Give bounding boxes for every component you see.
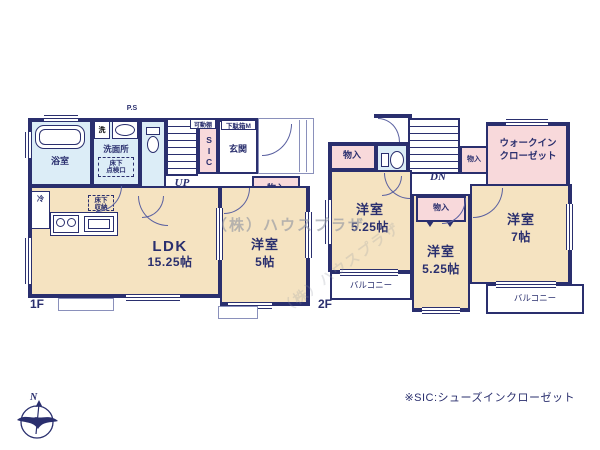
ldk-size-label: 15.25帖 bbox=[120, 255, 220, 271]
movable-shelf-label: 可動棚 bbox=[190, 119, 216, 129]
toilet-tank-1f bbox=[146, 127, 160, 135]
closet-2f-b-label: 物入 bbox=[460, 155, 488, 164]
compass-icon: N bbox=[12, 390, 62, 446]
window bbox=[422, 307, 460, 314]
bedroom-2f-right-size: 7帖 bbox=[486, 230, 556, 246]
stove-burner bbox=[56, 218, 65, 227]
ps-label: P.S bbox=[112, 104, 152, 113]
entrance-label: 玄関 bbox=[218, 144, 258, 156]
bathroom-label: 浴室 bbox=[28, 156, 92, 168]
floor-label-1f: 1F bbox=[30, 297, 44, 311]
balcony-left-label: バルコニー bbox=[330, 280, 412, 291]
sic-label: SIC bbox=[203, 131, 215, 171]
bathtub-inner bbox=[39, 129, 81, 145]
stairs-2f bbox=[408, 118, 460, 174]
floorplan-canvas: P.S 浴室 洗 洗面所 床下 点検口 UP 可動棚 SIC 下駄箱M 玄関 物… bbox=[0, 0, 600, 450]
bedroom-2f-center-size: 5.25帖 bbox=[412, 262, 470, 278]
terrace-step bbox=[218, 306, 258, 319]
floor-label-2f: 2F bbox=[318, 297, 332, 311]
folding-door-icon bbox=[426, 221, 434, 227]
stove-burner bbox=[67, 218, 76, 227]
underfloor-hatch-line2: 点検口 bbox=[99, 167, 133, 174]
bedroom-1f-size-label: 5帖 bbox=[218, 255, 312, 271]
wic-label-line2: クローゼット bbox=[488, 151, 568, 163]
fridge-space: 冷 bbox=[31, 191, 50, 229]
toilet-bowl-1f bbox=[147, 136, 159, 153]
underfloor-hatch: 床下 点検口 bbox=[98, 157, 134, 177]
toilet-tank-2f bbox=[381, 153, 389, 167]
window bbox=[25, 132, 32, 158]
kitchen-sink-basin bbox=[88, 219, 110, 229]
bedroom-1f-label: 洋室 bbox=[218, 237, 312, 254]
wic-label-line1: ウォークイン bbox=[488, 138, 568, 150]
balcony-right-label: バルコニー bbox=[486, 293, 584, 304]
toilet-bowl-2f bbox=[390, 151, 404, 169]
stairwell-curve bbox=[378, 118, 400, 142]
sic-note: ※SIC:シューズインクローゼット bbox=[380, 389, 575, 405]
bedroom-2f-center-label: 洋室 bbox=[412, 244, 470, 261]
stairs-dn-label: DN bbox=[420, 171, 456, 183]
washroom-label: 洗面所 bbox=[90, 144, 142, 155]
window bbox=[44, 115, 78, 122]
window bbox=[506, 119, 548, 126]
closet-2f-a-label: 物入 bbox=[328, 150, 376, 162]
washing-machine: 洗 bbox=[94, 121, 110, 139]
porch-step-line bbox=[299, 120, 300, 172]
window bbox=[126, 294, 180, 301]
washbasin-bowl bbox=[115, 124, 135, 136]
porch-step-line bbox=[306, 120, 307, 172]
shoebox-label: 下駄箱M bbox=[221, 120, 256, 130]
bathtub bbox=[35, 125, 85, 149]
terrace-step bbox=[58, 298, 114, 311]
window bbox=[566, 204, 573, 250]
window bbox=[496, 281, 556, 288]
north-label: N bbox=[29, 392, 38, 403]
bedroom-2f-right-label: 洋室 bbox=[486, 212, 556, 229]
ldk-label: LDK bbox=[120, 237, 220, 257]
window bbox=[25, 238, 32, 284]
watermark: （株）ハウスプラザ bbox=[212, 214, 365, 235]
